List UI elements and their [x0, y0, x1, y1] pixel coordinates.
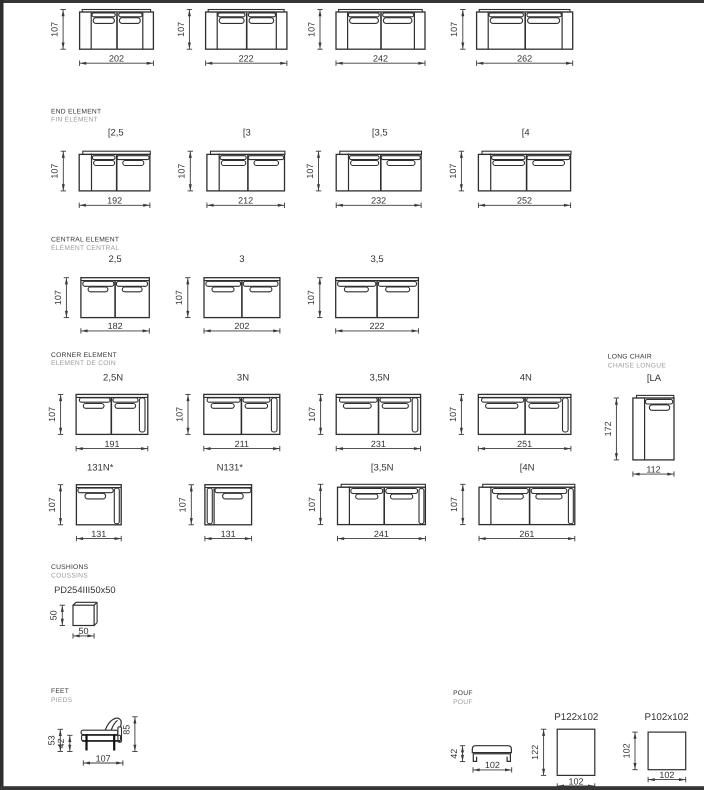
svg-text:107: 107 — [47, 407, 57, 422]
svg-text:P102x102: P102x102 — [644, 712, 688, 723]
svg-text:50: 50 — [49, 610, 59, 620]
svg-text:FIN ÉLÉMENT: FIN ÉLÉMENT — [51, 116, 98, 124]
svg-text:222: 222 — [239, 54, 254, 64]
svg-text:131N*: 131N* — [87, 463, 114, 474]
svg-text:3,5: 3,5 — [370, 254, 383, 265]
svg-text:4N: 4N — [520, 372, 532, 383]
svg-text:FEET: FEET — [51, 688, 69, 695]
svg-text:107: 107 — [96, 753, 111, 763]
svg-text:2,5N: 2,5N — [103, 372, 123, 383]
svg-text:107: 107 — [305, 164, 315, 179]
svg-text:ÉLÉMENT CENTRAL: ÉLÉMENT CENTRAL — [51, 244, 119, 252]
svg-text:131: 131 — [91, 529, 106, 539]
svg-text:3N: 3N — [237, 372, 249, 383]
svg-text:102: 102 — [568, 776, 583, 786]
svg-text:102: 102 — [485, 760, 500, 770]
svg-text:85: 85 — [121, 725, 131, 735]
svg-text:107: 107 — [448, 407, 458, 422]
svg-text:[3,5N: [3,5N — [371, 463, 394, 474]
svg-text:232: 232 — [371, 196, 386, 206]
svg-text:107: 107 — [307, 497, 317, 512]
svg-text:212: 212 — [238, 196, 253, 206]
svg-text:POUF: POUF — [453, 690, 473, 697]
svg-text:CENTRAL ELEMENT: CENTRAL ELEMENT — [51, 236, 119, 243]
svg-text:242: 242 — [373, 54, 388, 64]
svg-text:102: 102 — [659, 770, 674, 780]
svg-text:42: 42 — [449, 749, 459, 759]
svg-text:[2,5: [2,5 — [108, 128, 124, 139]
svg-text:107: 107 — [449, 22, 459, 37]
svg-text:211: 211 — [235, 439, 249, 449]
svg-text:102: 102 — [621, 743, 631, 758]
svg-text:P122x102: P122x102 — [554, 712, 598, 723]
svg-text:CUSHIONS: CUSHIONS — [51, 564, 89, 571]
svg-text:POUF: POUF — [453, 699, 473, 706]
svg-text:42: 42 — [56, 738, 66, 748]
svg-text:231: 231 — [371, 439, 386, 449]
svg-text:192: 192 — [107, 196, 122, 206]
svg-text:50: 50 — [78, 626, 88, 636]
svg-text:107: 107 — [177, 164, 187, 179]
svg-text:2,5: 2,5 — [108, 254, 121, 265]
svg-text:COUSSINS: COUSSINS — [51, 573, 88, 580]
svg-text:3: 3 — [239, 254, 244, 265]
svg-text:[4N: [4N — [520, 463, 535, 474]
svg-text:172: 172 — [603, 421, 613, 436]
svg-text:[3: [3 — [243, 128, 251, 139]
svg-text:[LA: [LA — [647, 373, 662, 384]
svg-text:END ELEMENT: END ELEMENT — [51, 108, 101, 115]
svg-text:202: 202 — [234, 321, 249, 331]
svg-text:CORNER ELEMENT: CORNER ELEMENT — [51, 352, 117, 359]
svg-text:252: 252 — [517, 196, 532, 206]
svg-text:107: 107 — [50, 22, 60, 37]
svg-text:CHAISE LONGUE: CHAISE LONGUE — [608, 363, 667, 370]
svg-text:53: 53 — [47, 735, 57, 745]
svg-text:241: 241 — [374, 529, 389, 539]
svg-text:[3,5: [3,5 — [372, 128, 388, 139]
svg-text:182: 182 — [108, 321, 123, 331]
svg-text:131: 131 — [221, 529, 236, 539]
svg-text:202: 202 — [109, 54, 124, 64]
svg-text:251: 251 — [517, 439, 532, 449]
svg-text:107: 107 — [176, 22, 186, 37]
svg-text:107: 107 — [449, 497, 459, 512]
svg-text:222: 222 — [369, 321, 384, 331]
svg-text:N131*: N131* — [217, 463, 244, 474]
svg-text:107: 107 — [178, 497, 188, 512]
svg-text:107: 107 — [448, 164, 458, 179]
svg-text:107: 107 — [50, 164, 60, 179]
svg-text:107: 107 — [174, 407, 184, 422]
svg-text:262: 262 — [517, 54, 532, 64]
svg-text:107: 107 — [53, 290, 63, 305]
svg-text:[4: [4 — [522, 128, 530, 139]
svg-text:PIEDS: PIEDS — [51, 697, 73, 704]
svg-text:191: 191 — [104, 439, 119, 449]
svg-text:ELEMENT DE COIN: ELEMENT DE COIN — [51, 360, 116, 367]
svg-text:107: 107 — [307, 407, 317, 422]
svg-text:261: 261 — [519, 529, 534, 539]
svg-text:107: 107 — [174, 290, 184, 305]
svg-text:107: 107 — [306, 22, 316, 37]
svg-text:112: 112 — [646, 464, 660, 474]
svg-text:PD254III50x50: PD254III50x50 — [54, 585, 116, 595]
svg-text:107: 107 — [306, 290, 316, 305]
svg-text:LONG CHAIR: LONG CHAIR — [608, 354, 652, 361]
svg-text:122: 122 — [530, 745, 540, 760]
svg-text:3,5N: 3,5N — [370, 372, 390, 383]
svg-text:107: 107 — [47, 497, 57, 512]
